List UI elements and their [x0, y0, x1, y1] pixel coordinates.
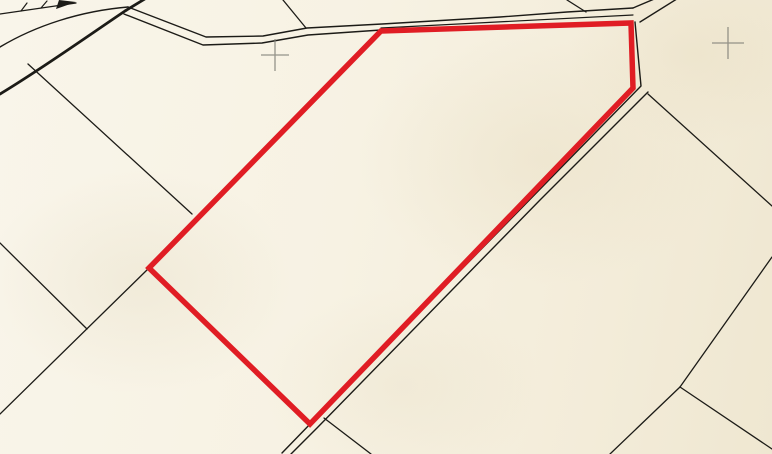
map-vector-layer	[0, 0, 772, 454]
boundary-bottom-center	[324, 418, 371, 454]
road-curve-north-edge	[0, 7, 128, 47]
road-inner-edge-southeast	[282, 22, 641, 453]
boundary-bottom-right-right-leg	[680, 387, 772, 449]
road-outer-edge-southeast	[291, 92, 648, 454]
path-symbol-arrowhead	[56, 0, 76, 9]
boundary-east-lower	[680, 257, 772, 387]
boundary-east-upper	[648, 94, 772, 206]
selected-parcel-outline[interactable]	[149, 23, 633, 424]
boundary-west-lower	[0, 268, 149, 414]
road-branch-ne-east-edge	[640, 0, 680, 22]
boundary-bottom-right-left-leg	[610, 387, 680, 454]
road-branch-ne-west-edge	[633, 0, 659, 8]
boundary-west-upper	[0, 243, 87, 329]
boundary-northwest	[28, 64, 192, 214]
road-south-edge-west	[124, 14, 381, 45]
survey-grid-cross	[712, 27, 744, 59]
scanned-cadastral-map	[0, 0, 772, 454]
boundary-top-center	[283, 0, 306, 28]
boundary-top-right	[567, 0, 586, 12]
survey-grid-cross	[261, 39, 289, 71]
